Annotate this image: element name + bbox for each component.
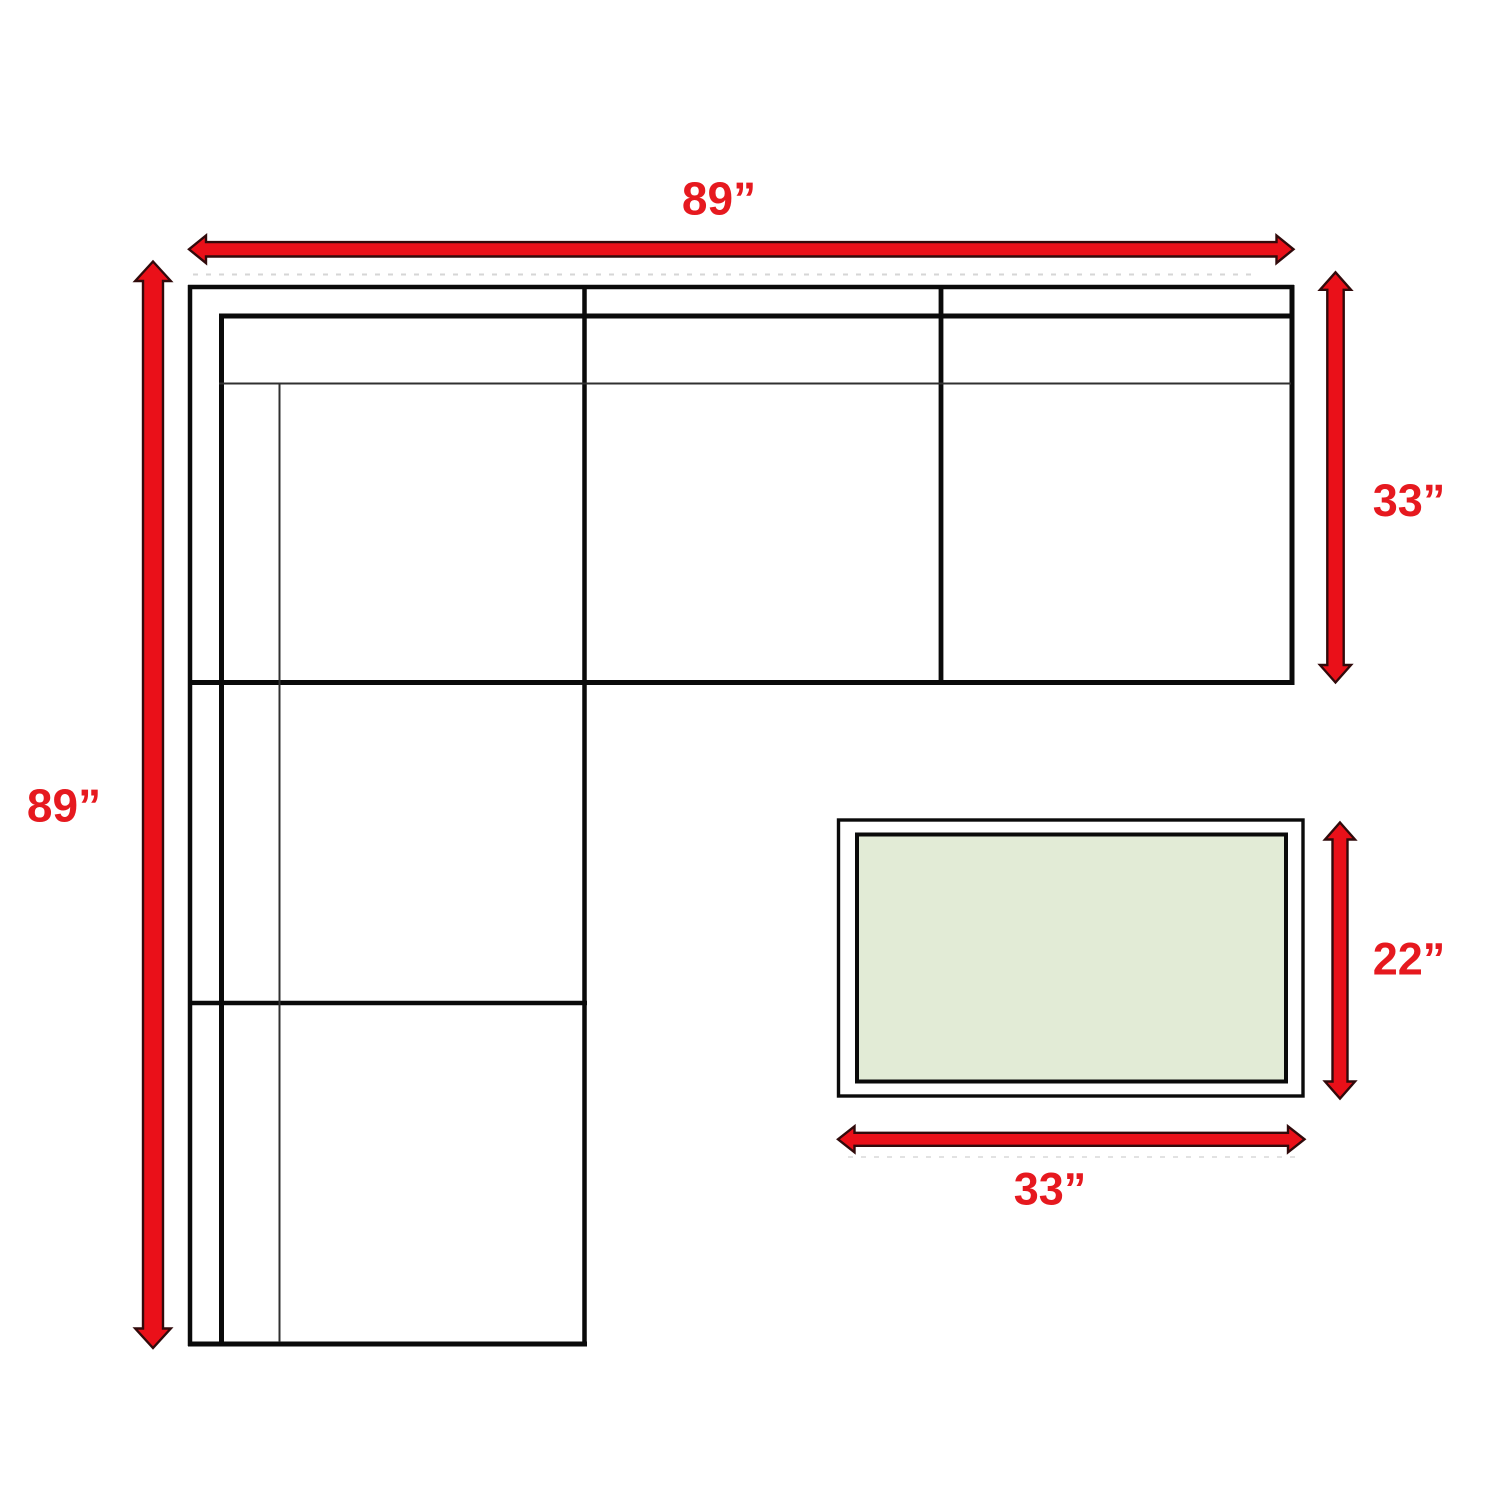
- svg-text:89”: 89”: [27, 780, 101, 832]
- svg-text:89”: 89”: [682, 173, 756, 225]
- svg-text:33”: 33”: [1373, 475, 1446, 526]
- svg-text:33”: 33”: [1014, 1164, 1087, 1215]
- svg-text:22”: 22”: [1373, 934, 1446, 985]
